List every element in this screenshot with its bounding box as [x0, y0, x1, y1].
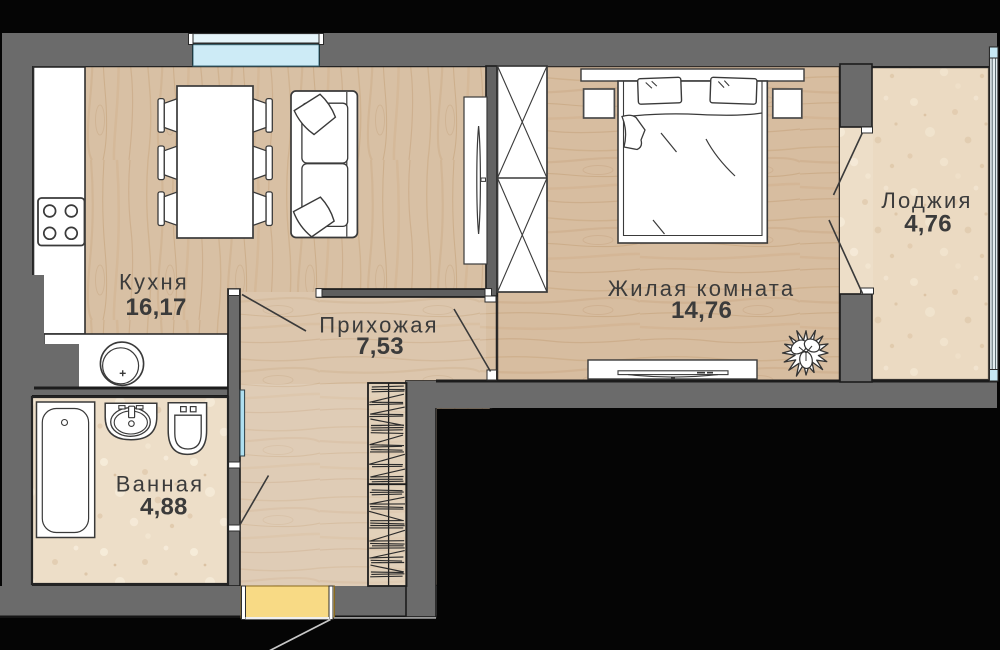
svg-text:4,76: 4,76: [904, 211, 952, 238]
svg-text:Кухня: Кухня: [119, 270, 189, 295]
svg-text:Лоджия: Лоджия: [881, 188, 972, 213]
svg-text:4,88: 4,88: [140, 494, 188, 521]
svg-text:14,76: 14,76: [671, 297, 732, 324]
svg-text:7,53: 7,53: [356, 333, 404, 360]
svg-text:16,17: 16,17: [125, 294, 186, 321]
